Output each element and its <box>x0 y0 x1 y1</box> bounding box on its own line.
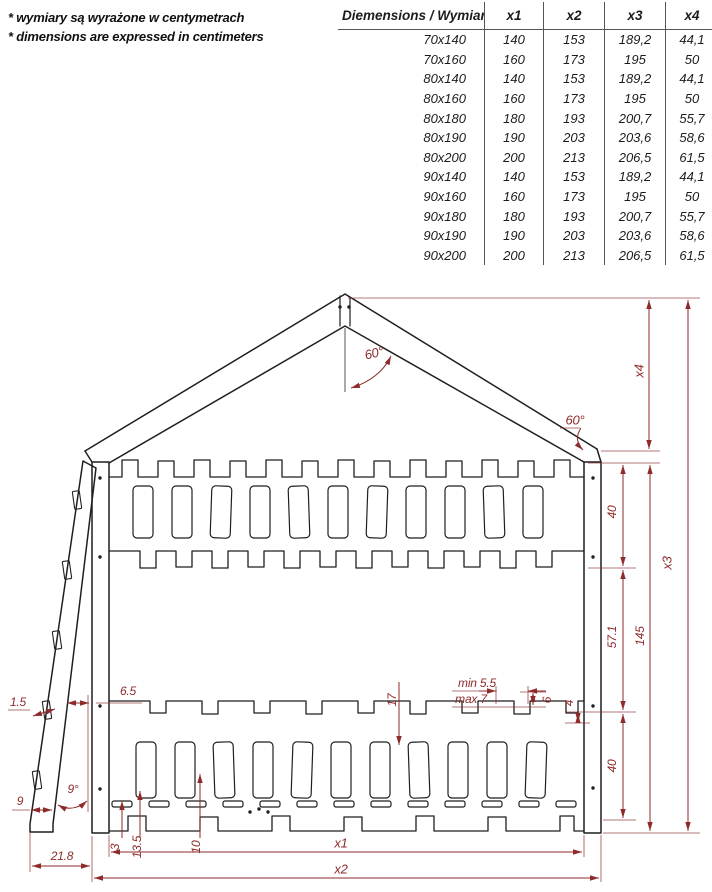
dim-label-6: 6 <box>540 697 554 703</box>
dim-label-10: 10 <box>189 841 203 854</box>
dim-label-145: 145 <box>633 626 647 645</box>
dim-label-4: 4 <box>562 700 576 706</box>
left-eave <box>85 451 109 462</box>
roof-outline <box>85 294 597 451</box>
left-post <box>92 462 109 833</box>
dim-label-3: 3 <box>108 844 122 850</box>
dim-label-9: 9 <box>17 794 23 808</box>
bed-frame-drawing <box>0 0 712 892</box>
dim-label-slot-min: min 5.5 <box>458 676 496 690</box>
upper-rail-top-edge <box>109 460 584 477</box>
dim-label-135: 13.5 <box>130 836 144 859</box>
frame-structure <box>30 294 601 833</box>
dim-label-571: 57.1 <box>605 626 619 649</box>
screw-dots <box>98 305 594 813</box>
dim-label-x2: x2 <box>334 862 347 877</box>
right-post <box>584 462 601 833</box>
dim-label-60-eave: 60° <box>565 413 584 428</box>
lower-rail-top-edge <box>109 701 584 714</box>
ladder-angle-arc <box>58 801 87 808</box>
dim-label-x1: x1 <box>334 836 347 851</box>
right-eave <box>584 449 601 462</box>
dim-label-x3: x3 <box>660 556 675 569</box>
technical-drawing-page: { "notes": { "line1": "* wymiary są wyra… <box>0 0 712 892</box>
dim-label-slot-max: max 7 <box>455 692 487 706</box>
dim-label-40-upper: 40 <box>605 506 619 519</box>
dim-label-218: 21.8 <box>51 849 74 863</box>
lower-guardrail-slats <box>136 742 547 799</box>
roof-inner <box>109 326 584 463</box>
dim-label-40-lower: 40 <box>605 760 619 773</box>
upper-rail-bottom-edge <box>109 551 584 568</box>
dim-label-15: 1.5 <box>10 695 26 709</box>
dim-label-65: 6.5 <box>120 684 136 698</box>
extension-lines <box>8 298 700 882</box>
roof-ridge-cap <box>340 296 350 326</box>
dimension-lines <box>31 300 688 878</box>
upper-guardrail-slats <box>133 486 543 539</box>
lower-rail-bottom-edge <box>109 816 584 831</box>
dim-label-17: 17 <box>385 694 399 707</box>
base-battens <box>112 801 576 807</box>
dim-label-9deg: 9° <box>67 782 78 796</box>
dim-label-x4: x4 <box>632 364 647 377</box>
